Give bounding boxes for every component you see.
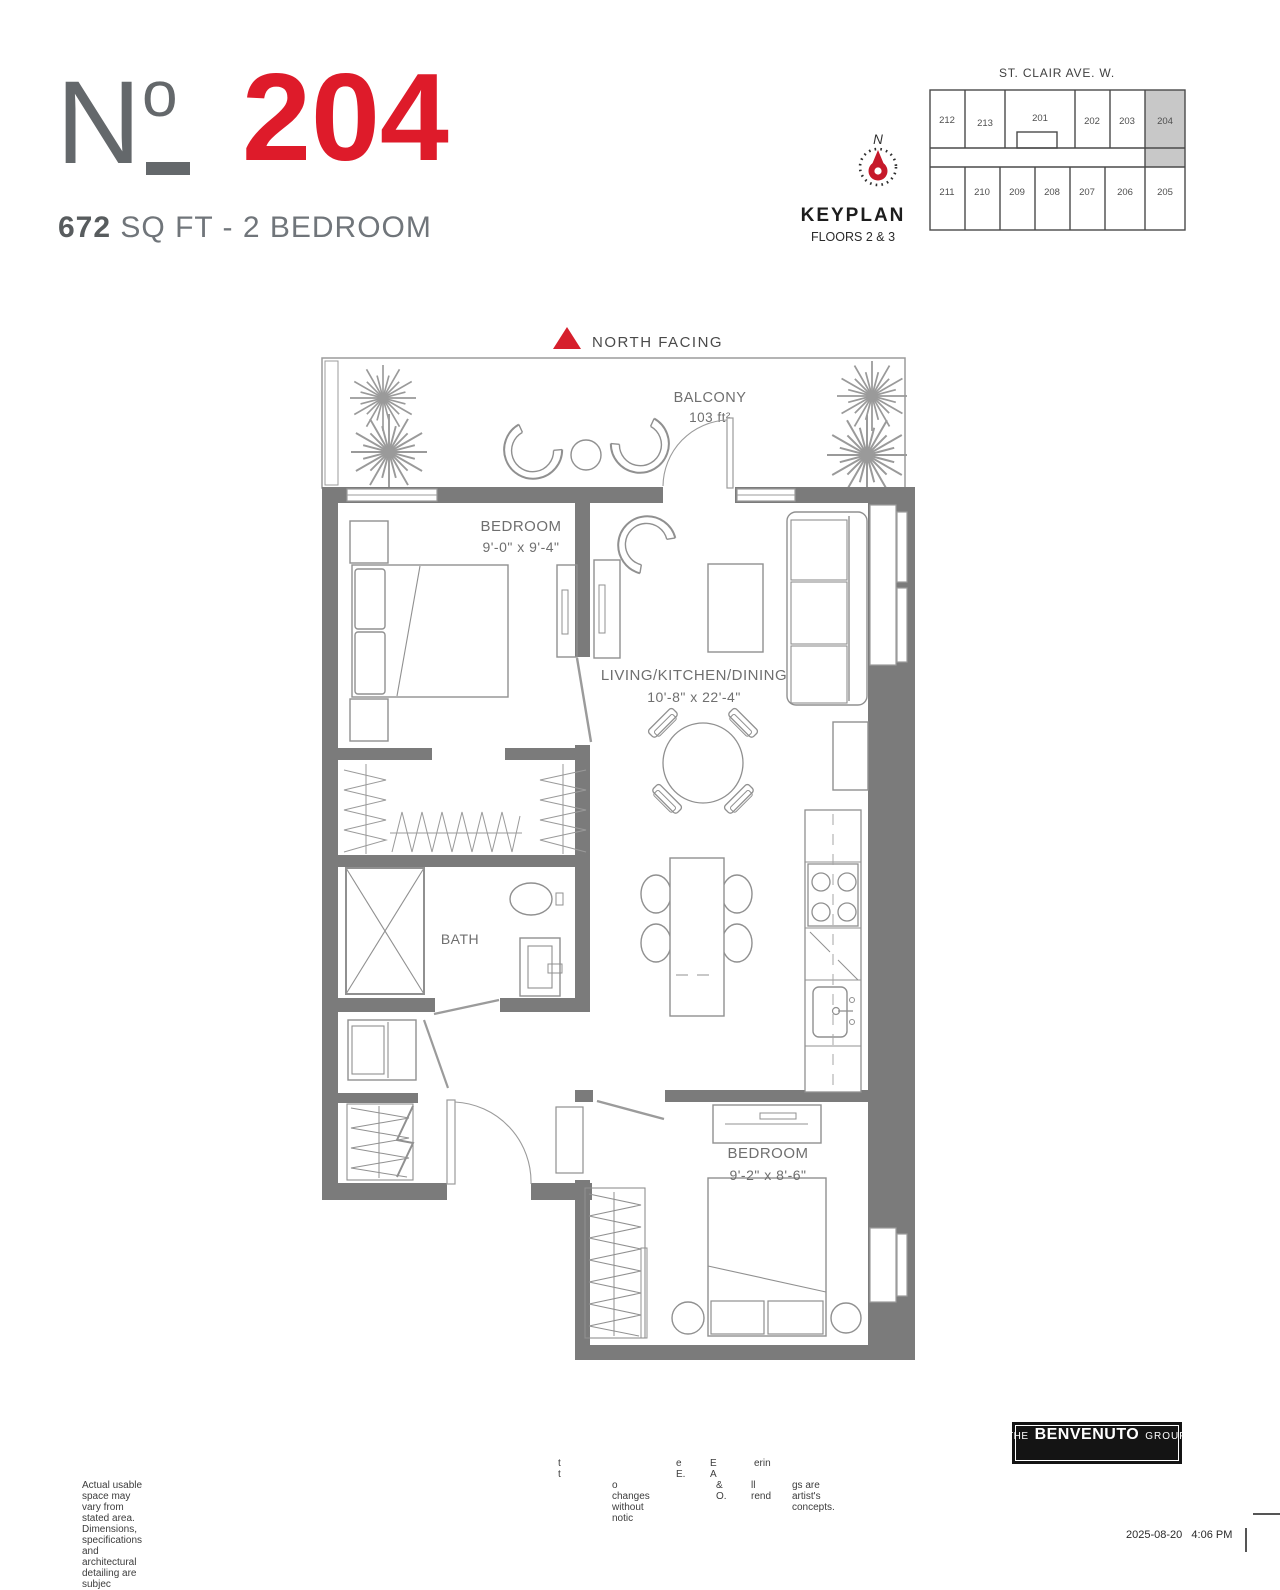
island-stool [641, 924, 671, 962]
area-value: 672 [58, 211, 111, 244]
pillow [711, 1301, 764, 1334]
bed [352, 565, 508, 697]
closet-slider [641, 1248, 647, 1338]
keyplan-unit: 203 [1119, 116, 1135, 127]
hall-closet [344, 764, 586, 854]
bedroom2-window-glass [897, 1234, 907, 1296]
kitchen-counter [805, 810, 861, 1092]
living-label: LIVING/KITCHEN/DINING [601, 667, 787, 684]
laundry-unit [348, 1020, 416, 1080]
sofa [787, 512, 867, 705]
unit-number: 204 [242, 56, 449, 180]
coffee-table [708, 564, 763, 652]
bedroom2-window-niche [870, 1228, 896, 1302]
pillow [355, 632, 385, 694]
entry-door-swing [455, 1102, 531, 1184]
kitchen [641, 810, 861, 1092]
crop-mark-vertical [1245, 1528, 1247, 1552]
brand-group: GROUP [1145, 1431, 1187, 1442]
keyplan-unit: 213 [977, 118, 993, 129]
pillow [355, 569, 385, 629]
faucet [556, 893, 563, 905]
brand-name: BENVENUTO [1035, 1426, 1140, 1444]
disclaimer-text: Actual usable space may vary from stated… [82, 1480, 142, 1590]
unit-logo: N o 204 [56, 70, 476, 210]
keyplan-unit: 205 [1157, 187, 1173, 198]
tv [599, 585, 605, 633]
entry-door-leaf [447, 1100, 455, 1184]
floorplan-page: { "colors": {"accent_red": "#DE1B2A", "w… [0, 0, 1280, 1552]
keyplan-unit: 207 [1079, 187, 1095, 198]
balcony-label: BALCONY [674, 390, 747, 406]
laundry-door-leaf [424, 1020, 448, 1088]
keyplan-unit: 208 [1044, 187, 1060, 198]
disclaimer-text: ll rend [751, 1480, 771, 1502]
dresser-handle [562, 590, 568, 634]
sofa-cushion [791, 646, 847, 703]
entry-door-opening [447, 1183, 531, 1200]
balcony-door-opening [663, 487, 735, 503]
area-rest: SQ FT - 2 BEDROOM [111, 211, 432, 244]
crop-mark-horizontal [1253, 1513, 1280, 1515]
bedroom2 [585, 1105, 861, 1338]
dining-set [647, 707, 758, 816]
floorplan-drawing: NORTH FACING BALCONY 103 ft² [315, 322, 923, 1367]
brand-badge-inner: THE BENVENUTO GROUP [1015, 1425, 1179, 1461]
bath-sink [510, 883, 552, 915]
bedroom2-door-leaf [597, 1101, 664, 1119]
keyplan-unit: 206 [1117, 187, 1133, 198]
north-facing-indicator: NORTH FACING [553, 327, 723, 351]
bedroom1-label: BEDROOM [480, 518, 561, 535]
keyplan-street-label: ST. CLAIR AVE. W. [999, 66, 1115, 80]
bedroom1-door-leaf [577, 658, 591, 742]
keyplan-unit: 201 [1032, 113, 1048, 124]
island-stool [722, 875, 752, 913]
keyplan-building [930, 90, 1185, 230]
bath-label: BATH [441, 931, 479, 947]
disclaimer-fragment: E A [710, 1458, 717, 1480]
side-window-glass [897, 588, 907, 662]
disclaimer-fragment: t t [558, 1458, 561, 1480]
round-nightstand [831, 1303, 861, 1333]
tv-console [594, 560, 620, 658]
keyplan-title: KEYPLAN [801, 205, 906, 226]
bedroom2-dims: 9'-2" x 8'-6" [729, 1167, 806, 1183]
compass-icon: N [860, 132, 896, 185]
keyplan-unit: 209 [1009, 187, 1025, 198]
compass-north-label: N [873, 132, 883, 147]
bedroom1-dims: 9'-0" x 9'-4" [482, 539, 559, 555]
north-arrow-icon [553, 327, 581, 349]
bedroom1-dresser [557, 565, 577, 657]
sofa-cushion [791, 582, 847, 644]
brand-the: THE [1007, 1431, 1029, 1442]
keyplan: ST. CLAIR AVE. W. N KEYPLAN FLOORS 2 & 3… [795, 60, 1195, 265]
dresser-handle [760, 1113, 796, 1119]
keyplan-unit: 211 [939, 187, 954, 198]
keyplan-subtitle: FLOORS 2 & 3 [811, 230, 895, 244]
balcony-door-leaf [727, 418, 733, 488]
keyplan-unit: 210 [974, 187, 990, 198]
island-stool [722, 924, 752, 962]
armchair [606, 504, 678, 576]
dining-table [663, 723, 743, 803]
unit-subtitle: 672 SQ FT - 2 BEDROOM [58, 211, 432, 245]
north-facing-label: NORTH FACING [592, 334, 723, 351]
toilet [520, 938, 560, 996]
bed [708, 1178, 826, 1336]
print-timestamp: 2025-08-20 4:06 PM [1126, 1529, 1232, 1541]
brand-badge: THE BENVENUTO GROUP [1012, 1422, 1182, 1464]
balcony: BALCONY 103 ft² [322, 358, 907, 495]
keyplan-unit: 202 [1084, 116, 1100, 127]
keyplan-unit-204: 204 [1157, 116, 1173, 127]
disclaimer-fragment: e E. [676, 1458, 685, 1480]
side-table [833, 722, 868, 790]
side-window-glass [897, 512, 907, 582]
bedroom2-label: BEDROOM [727, 1145, 808, 1162]
disclaimer-text: gs are artist's concepts. [792, 1480, 835, 1513]
kitchen-island [670, 858, 724, 1016]
keyplan-unit-labels: 212 213 201 202 203 204 211 210 209 208 … [939, 113, 1173, 198]
keyplan-unit-204-highlight [1145, 90, 1185, 167]
sofa-cushion [791, 520, 847, 580]
nightstand [350, 521, 388, 563]
hall-cabinet [556, 1107, 583, 1173]
unit-prefix-letter: N [56, 64, 137, 182]
island-stool [641, 875, 671, 913]
bath-door-leaf [434, 1000, 499, 1014]
disclaimer-fragment: erin [754, 1458, 771, 1469]
unit-prefix-o: o [142, 62, 178, 126]
living-dims: 10'-8" x 22'-4" [647, 689, 741, 705]
disclaimer-text: & O. [716, 1480, 727, 1502]
side-window-niche [870, 505, 896, 665]
keyplan-unit: 212 [939, 115, 955, 126]
nightstand [350, 699, 388, 741]
pillow [768, 1301, 823, 1334]
unit-prefix-underline [146, 162, 190, 175]
round-nightstand [672, 1302, 704, 1334]
disclaimer-text: o changes without notic [612, 1480, 650, 1524]
